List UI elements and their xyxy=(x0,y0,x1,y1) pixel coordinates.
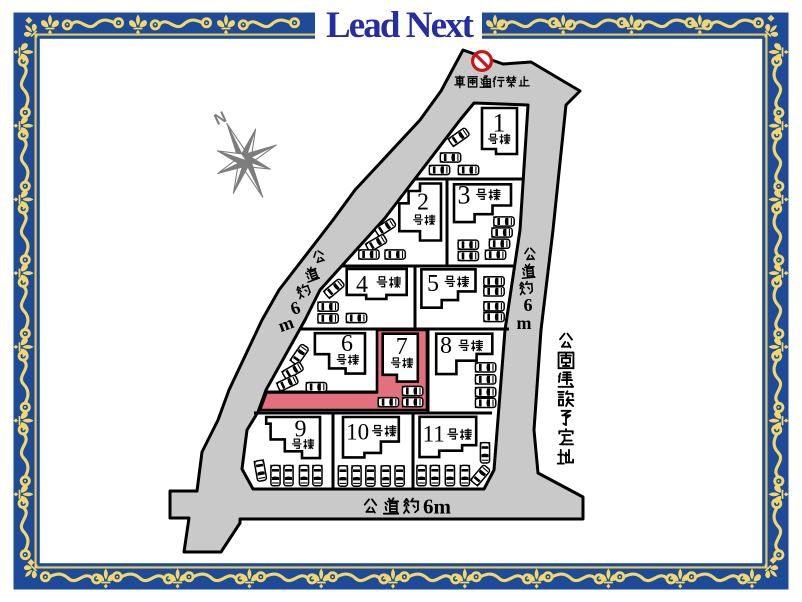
svg-text:8: 8 xyxy=(440,333,452,359)
svg-text:4: 4 xyxy=(356,272,368,298)
svg-text:m: m xyxy=(517,313,532,333)
svg-text:6: 6 xyxy=(341,331,353,357)
svg-text:2: 2 xyxy=(417,190,429,216)
svg-text:1: 1 xyxy=(493,109,506,138)
svg-text:Lead Next: Lead Next xyxy=(326,5,475,46)
svg-text:11: 11 xyxy=(423,421,445,446)
svg-text:6: 6 xyxy=(524,295,533,315)
svg-text:5: 5 xyxy=(427,271,439,297)
svg-text:3: 3 xyxy=(458,181,471,210)
svg-text:7: 7 xyxy=(396,334,408,360)
svg-text:6m: 6m xyxy=(423,495,452,519)
svg-text:10: 10 xyxy=(346,419,369,444)
